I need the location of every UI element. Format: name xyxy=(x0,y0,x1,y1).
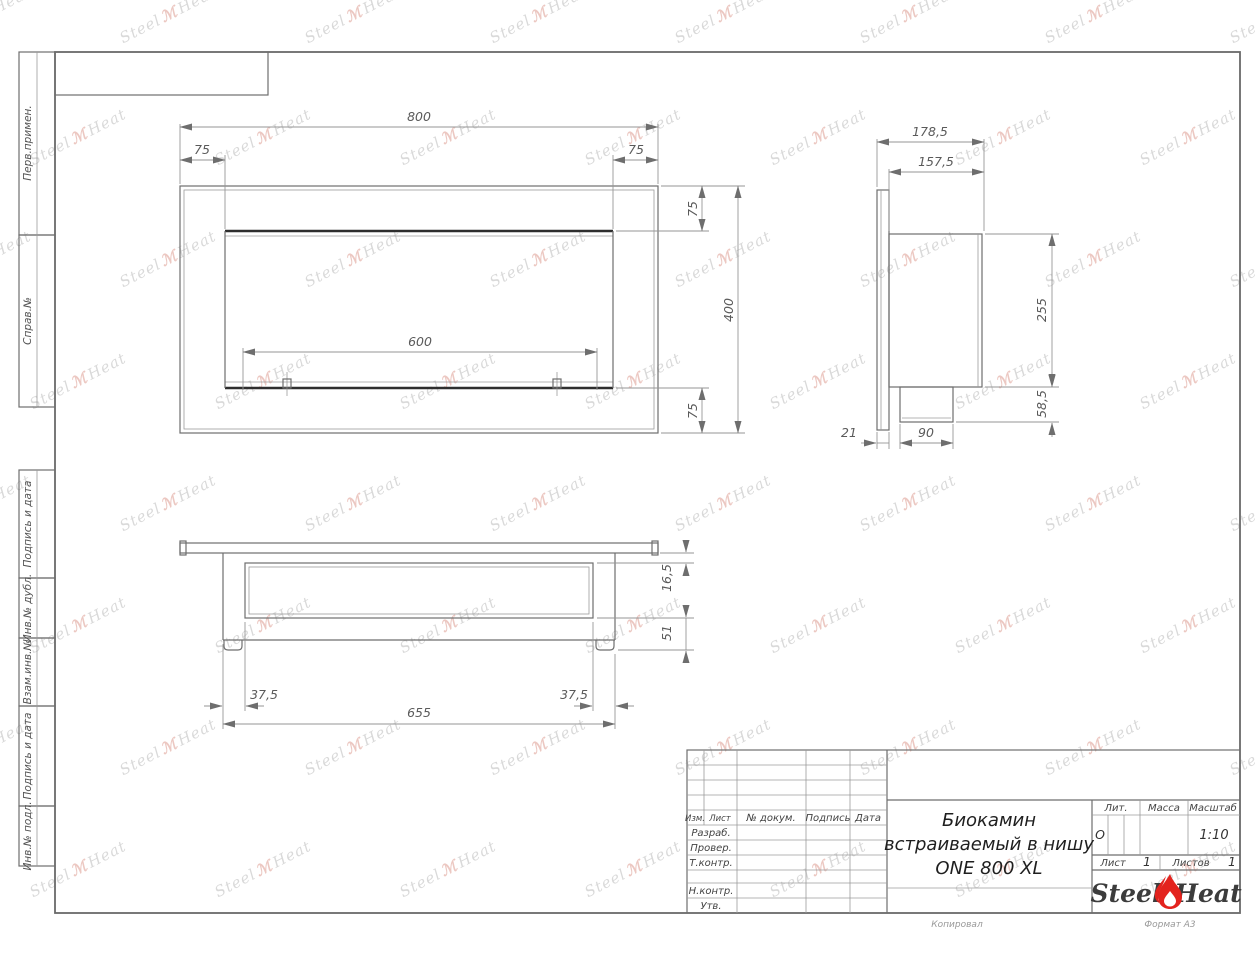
row-razrab: Разраб. xyxy=(691,827,730,839)
sheets-value: 1 xyxy=(1228,854,1236,869)
sheet-value: 1 xyxy=(1143,854,1151,869)
col-doc: № докум. xyxy=(745,813,795,824)
dim-side-total-depth: 178,5 xyxy=(912,124,948,139)
bottom-view-dimensions: 16,5 51 37,5 37,5 655 xyxy=(204,540,694,729)
margin-label-inv-podl: Инв.№ подл. xyxy=(22,801,34,870)
dim-side-flange-thickness: 21 xyxy=(841,425,857,440)
massa-label: Масса xyxy=(1148,803,1180,814)
col-list: Лист xyxy=(708,814,732,824)
row-utv: Утв. xyxy=(701,901,722,912)
sheet-label: Лист xyxy=(1099,858,1127,869)
dim-front-bottom-inset: 75 xyxy=(685,403,700,419)
dim-bottom-right-inset: 37,5 xyxy=(560,687,588,702)
top-reference-box xyxy=(55,52,268,95)
dim-side-body-depth: 157,5 xyxy=(918,154,954,169)
dim-bottom-tray-drop: 51 xyxy=(659,625,674,641)
row-prover: Провер. xyxy=(690,843,732,854)
scale-value: 1:10 xyxy=(1199,828,1228,843)
technical-drawing: Перв.примен. Справ.№ Подпись и дата Инв.… xyxy=(0,0,1255,970)
dim-side-tray-depth: 90 xyxy=(918,425,934,440)
row-nkontr: Н.контр. xyxy=(689,886,734,897)
dim-front-left-inset: 75 xyxy=(194,142,210,157)
footer-format: Формат А3 xyxy=(1144,920,1196,930)
margin-label-inv-dubl: Инв.№ дубл. xyxy=(22,574,34,643)
dim-bottom-left-inset: 37,5 xyxy=(250,687,278,702)
dim-side-tray-height: 58,5 xyxy=(1034,390,1049,418)
side-view-dimensions: 178,5 157,5 255 58,5 21 90 xyxy=(841,124,1059,449)
drawing-title-line1: Биокамин xyxy=(942,810,1036,831)
burner-clip-right xyxy=(553,372,561,396)
scale-label: Масштаб xyxy=(1189,802,1237,814)
foot-left xyxy=(224,640,242,650)
dim-front-top-inset: 75 xyxy=(685,201,700,217)
margin-label-podpis-data-2: Подпись и дата xyxy=(22,713,34,800)
drawing-title-line3: ONE 800 XL xyxy=(935,858,1042,879)
margin-label-sprav: Справ.№ xyxy=(22,297,34,345)
steelheat-logo: Steel Heat xyxy=(1091,874,1243,909)
dim-front-height: 400 xyxy=(721,298,736,322)
lit-label: Лит. xyxy=(1103,803,1127,814)
sheets-label: Листов xyxy=(1171,858,1209,869)
dim-front-opening-width: 600 xyxy=(408,334,432,349)
drawing-sheet: SteelℳHeatSteelℳHeatSteelℳHeatSteelℳHeat… xyxy=(0,0,1255,970)
col-izm: Изм. xyxy=(685,814,705,824)
margin-label-vzam-inv: Взам.инв.№ xyxy=(22,640,34,705)
drawing-title-line2: встраиваемый в нишу xyxy=(884,834,1094,855)
row-tkontr: Т.контр. xyxy=(689,858,732,869)
foot-right xyxy=(596,640,614,650)
title-block: Изм. Лист № докум. Подпись Дата Разраб. … xyxy=(685,750,1242,930)
logo-heat-text: Heat xyxy=(1173,879,1242,908)
front-view xyxy=(180,186,658,433)
margin-label-perv-primen: Перв.примен. xyxy=(22,105,34,180)
col-data: Дата xyxy=(854,813,881,824)
front-view-dimensions: 800 75 75 600 75 400 75 xyxy=(180,109,745,433)
logo-steel-text: Steel xyxy=(1091,879,1162,908)
dim-front-right-inset: 75 xyxy=(628,142,644,157)
margin-column: Перв.примен. Справ.№ Подпись и дата Инв.… xyxy=(19,52,55,871)
footer-copied: Копировал xyxy=(931,920,983,930)
side-view xyxy=(877,190,982,430)
dim-side-body-height: 255 xyxy=(1034,298,1049,322)
dim-bottom-body-width: 655 xyxy=(407,705,431,720)
margin-label-podpis-data-1: Подпись и дата xyxy=(22,481,34,568)
col-podpis: Подпись xyxy=(806,813,851,824)
burner-clip-left xyxy=(283,372,291,396)
bottom-view xyxy=(180,541,658,650)
dim-bottom-flange-gap: 16,5 xyxy=(659,564,674,592)
lit-value: О xyxy=(1095,827,1105,842)
dim-front-width: 800 xyxy=(407,109,431,124)
sheet-frame xyxy=(55,52,1240,913)
